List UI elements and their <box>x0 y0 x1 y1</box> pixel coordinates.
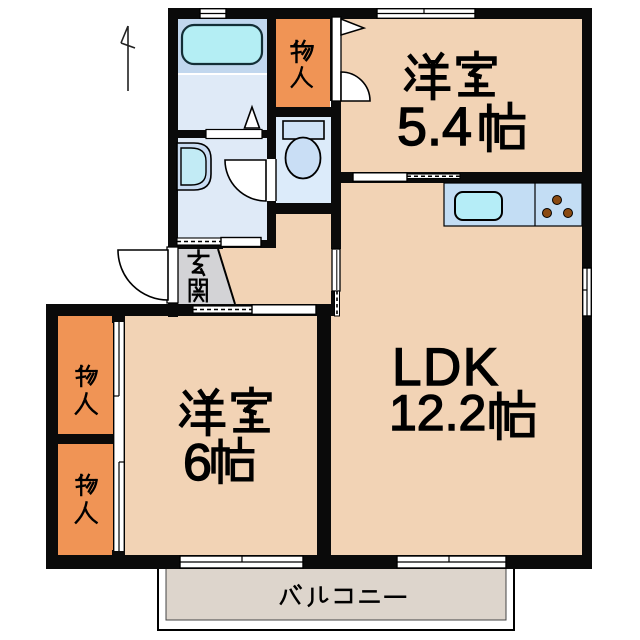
svg-text:12.2: 12.2 <box>389 385 486 441</box>
svg-text:6: 6 <box>183 434 212 492</box>
svg-text:5.4: 5.4 <box>397 97 472 157</box>
